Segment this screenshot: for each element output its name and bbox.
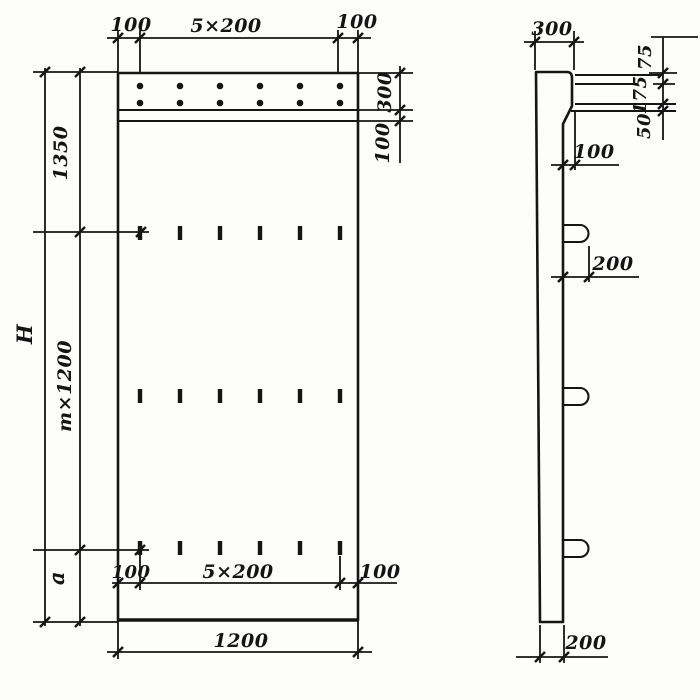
dim-side-top-width-label: 300 (531, 18, 572, 40)
dim-upper-height-label: 1350 (50, 126, 72, 181)
anchor-dash-rows (138, 226, 342, 555)
dim-front-top-span-label: 5×200 (190, 15, 261, 37)
dim-front-top-left-label: 100 (110, 14, 151, 36)
rebar-dots (137, 83, 344, 107)
hook-3 (563, 540, 589, 557)
technical-drawing-sheet: 100 5×200 100 300 100 H 1350 m×1200 a 10… (0, 0, 700, 700)
dim-bot-right-label: 100 (359, 561, 400, 583)
dim-bot-left-label: 100 (111, 562, 150, 583)
dim-bottom-gap-label: a (44, 571, 69, 585)
dim-ledge-bottom-label: 50 (634, 113, 655, 139)
side-extension-lines (535, 31, 698, 663)
dim-strip-height-label: 300 (374, 71, 396, 112)
dash-row-2 (138, 389, 342, 403)
dash-row-3 (138, 541, 342, 555)
dim-total-height-label: H (12, 323, 37, 345)
front-panel-outline (117, 73, 359, 620)
front-view: 100 5×200 100 300 100 H 1350 m×1200 a 10… (12, 11, 413, 659)
hook-1 (563, 225, 589, 242)
dim-front-top-right-label: 100 (336, 11, 377, 33)
dim-ledge-top-label: 75 (635, 44, 656, 70)
side-view: 300 75 175 50 100 200 200 (516, 18, 698, 663)
dash-row-1 (138, 226, 342, 240)
dim-step-label: 100 (573, 141, 614, 163)
dim-width-label: 1200 (214, 630, 269, 652)
dim-strip-band-label: 100 (372, 122, 394, 163)
dim-hook-label: 200 (591, 253, 633, 275)
dim-module-height-label: m×1200 (54, 340, 76, 432)
hook-2 (563, 388, 589, 405)
dim-side-bottom-width-label: 200 (564, 632, 606, 654)
dim-bot-span-label: 5×200 (202, 561, 273, 583)
front-dimension-lines (45, 38, 400, 652)
panel-dimension-drawing: 100 5×200 100 300 100 H 1350 m×1200 a 10… (0, 0, 700, 700)
dim-ledge-mid-label: 175 (630, 75, 651, 114)
